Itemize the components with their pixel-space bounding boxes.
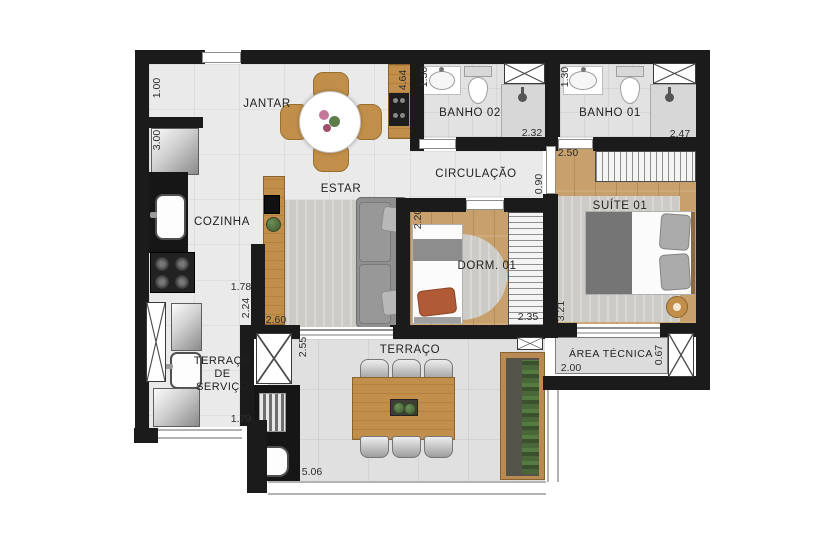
toilet-tank bbox=[464, 66, 492, 77]
dim-servico-opening: 1.79 bbox=[231, 413, 251, 425]
suite-window bbox=[577, 327, 660, 329]
window-shaft-icon bbox=[653, 63, 696, 84]
wall bbox=[149, 117, 203, 128]
wall bbox=[134, 428, 158, 443]
room-label-banho01: BANHO 01 bbox=[579, 107, 641, 119]
window-shaft-icon bbox=[146, 302, 166, 382]
side-table bbox=[666, 296, 688, 318]
dim-suite-closet: 2.50 bbox=[558, 147, 578, 159]
suite-window bbox=[577, 332, 660, 334]
label-line: TERRAÇO bbox=[180, 355, 265, 368]
suite-wardrobe bbox=[595, 151, 696, 182]
vent-icon bbox=[517, 337, 543, 350]
label-line: SERVIÇO bbox=[180, 381, 265, 394]
table-planter bbox=[390, 399, 418, 416]
wall bbox=[543, 376, 710, 390]
bed-foot-bench bbox=[414, 317, 461, 323]
terrace-table bbox=[352, 377, 455, 440]
wall bbox=[593, 137, 710, 151]
room-label-cozinha: COZINHA bbox=[194, 216, 250, 228]
wall bbox=[410, 137, 419, 151]
room-label-dorm01: DORM. 01 bbox=[457, 260, 516, 272]
wall bbox=[543, 323, 577, 337]
window-shaft-icon bbox=[504, 63, 545, 84]
dim-circulation-width: 0.90 bbox=[533, 174, 545, 194]
banho02-door bbox=[419, 139, 456, 149]
dim-area-tecnica-depth: 0.67 bbox=[653, 345, 665, 365]
bed-pillow bbox=[659, 253, 691, 291]
faucet-icon bbox=[581, 67, 586, 72]
dim-kitchen-wall: 3.00 bbox=[151, 130, 163, 150]
wall bbox=[247, 420, 267, 493]
dim-entry-recess: 1.00 bbox=[151, 78, 163, 98]
dim-banho02-sink-wall: 1.30 bbox=[418, 67, 430, 87]
appliance-icon bbox=[389, 93, 409, 126]
knob-icon bbox=[393, 98, 398, 103]
faucet-icon bbox=[439, 67, 444, 72]
orange-pillow bbox=[417, 287, 458, 317]
dim-estar-width: 2.60 bbox=[266, 314, 286, 326]
plant-icon bbox=[266, 217, 281, 232]
wall bbox=[396, 198, 410, 338]
burner-icon bbox=[175, 275, 189, 289]
entry-door bbox=[202, 52, 241, 63]
kitchen-sink-icon bbox=[155, 194, 186, 240]
dim-banho02-width: 2.32 bbox=[522, 127, 542, 139]
shaft-icon bbox=[668, 333, 694, 377]
terrace-chair bbox=[392, 436, 421, 458]
wall bbox=[545, 50, 560, 137]
bed-blanket bbox=[413, 239, 462, 261]
bed-pillow bbox=[659, 213, 691, 251]
floor-plan: JANTAR COZINHA ESTAR CIRCULAÇÃO BANHO 02… bbox=[0, 0, 838, 554]
bed-blanket bbox=[586, 212, 632, 294]
terrace-railing bbox=[268, 481, 546, 495]
terrace-railing bbox=[547, 390, 559, 482]
headboard bbox=[691, 212, 695, 294]
burner-icon bbox=[175, 257, 189, 271]
plant-icon bbox=[404, 403, 416, 415]
room-label-circulacao: CIRCULAÇÃO bbox=[435, 168, 516, 180]
double-bed bbox=[585, 211, 695, 295]
flowers-icon bbox=[319, 110, 329, 120]
shower-stem bbox=[521, 87, 524, 95]
dim-terraco-depth: 2.55 bbox=[297, 337, 309, 357]
wall bbox=[241, 50, 710, 64]
sliding-door bbox=[300, 329, 393, 331]
wall bbox=[504, 198, 545, 212]
dim-social-length: 4.64 bbox=[397, 70, 409, 90]
room-label-estar: ESTAR bbox=[321, 183, 362, 195]
room-label-terraco: TERRAÇO bbox=[380, 344, 440, 356]
terrace-chair bbox=[360, 436, 389, 458]
planter bbox=[500, 352, 545, 480]
toilet-tank bbox=[616, 66, 644, 77]
knob-icon bbox=[400, 113, 405, 118]
shower-stem bbox=[668, 87, 671, 95]
room-label-area-tecnica: ÁREA TÉCNICA bbox=[569, 348, 653, 360]
room-label-jantar: JANTAR bbox=[243, 98, 290, 110]
sliding-door bbox=[300, 334, 393, 336]
suite01-door bbox=[546, 146, 556, 194]
dim-terraco-width: 5.06 bbox=[302, 466, 322, 478]
planter-plants bbox=[522, 360, 539, 474]
single-bed bbox=[412, 224, 463, 324]
label-line: DE bbox=[180, 368, 265, 381]
side-table-top bbox=[673, 303, 681, 311]
bathroom-sink-icon bbox=[569, 71, 597, 90]
stove-icon bbox=[150, 252, 195, 293]
room-label-suite01: SUÍTE 01 bbox=[593, 200, 648, 212]
room-label-banho02: BANHO 02 bbox=[439, 107, 501, 119]
dim-dorm-depth: 2.20 bbox=[412, 209, 424, 229]
bathroom-sink-icon bbox=[429, 71, 455, 90]
dorm01-door bbox=[466, 200, 504, 210]
servico-railing bbox=[158, 429, 242, 439]
faucet-icon bbox=[150, 212, 157, 218]
burner-icon bbox=[155, 257, 169, 271]
dim-banho01-sink-wall: 1.30 bbox=[559, 67, 571, 87]
dim-area-tecnica-width: 2.00 bbox=[561, 362, 581, 374]
washer-icon bbox=[171, 303, 202, 351]
flowers-icon bbox=[323, 124, 331, 132]
knob-icon bbox=[393, 113, 398, 118]
burner-icon bbox=[155, 275, 169, 289]
dim-kitchen-opening: 1.78 bbox=[231, 281, 251, 293]
tv-icon bbox=[264, 195, 280, 214]
wall bbox=[410, 50, 424, 151]
dim-suite-depth: 3.21 bbox=[555, 301, 567, 321]
wall bbox=[696, 50, 710, 390]
wall bbox=[251, 244, 265, 328]
faucet-icon bbox=[165, 364, 173, 369]
dim-dorm-width: 2.35 bbox=[518, 311, 538, 323]
dim-kitchen-counter: 2.24 bbox=[240, 298, 252, 318]
room-label-terraco-servico: TERRAÇO DE SERVIÇO bbox=[180, 355, 265, 394]
knob-icon bbox=[400, 98, 405, 103]
terrace-chair bbox=[424, 436, 453, 458]
living-rug bbox=[278, 200, 359, 327]
dim-banho01-width: 2.47 bbox=[670, 128, 690, 140]
wall bbox=[456, 137, 558, 151]
